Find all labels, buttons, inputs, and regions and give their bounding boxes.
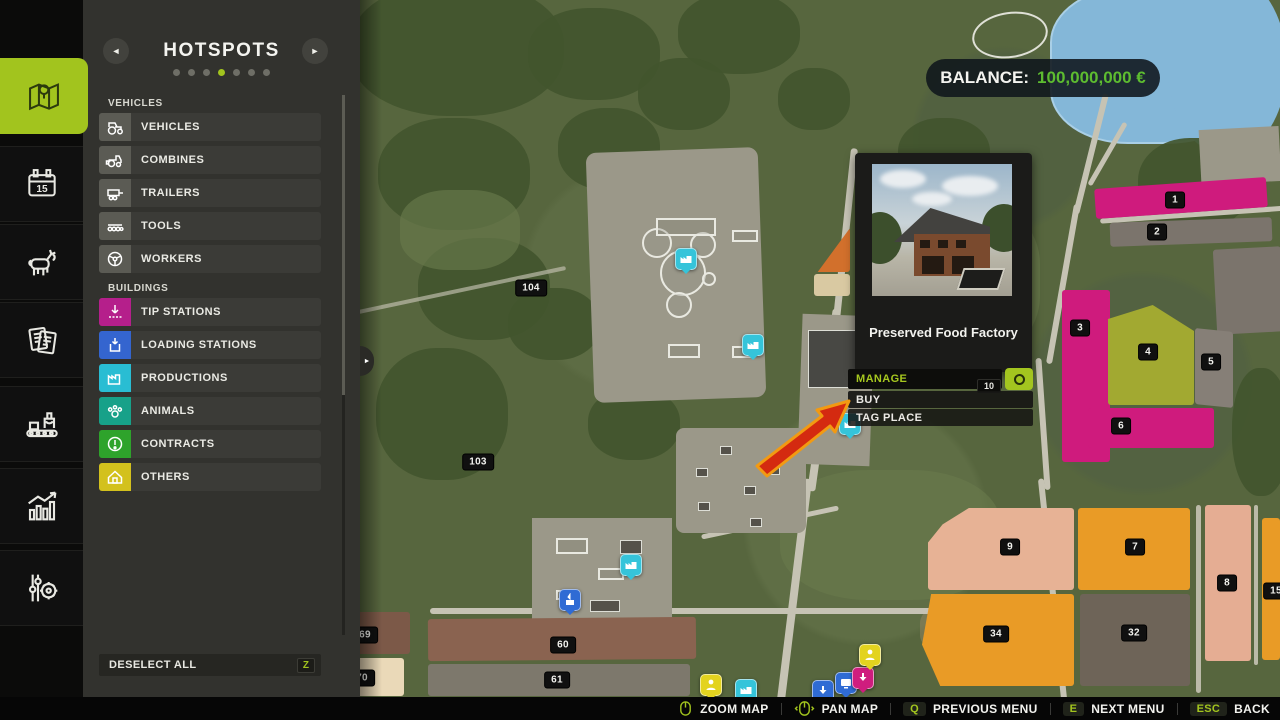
divider [781,703,782,715]
filter-label: TRAILERS [131,179,200,207]
field-number-61: 61 [544,672,570,689]
next-page-button[interactable]: ► [302,38,328,64]
hotspot-filter-workers[interactable]: WORKERS [99,245,321,273]
field-number-7: 7 [1125,539,1145,556]
page-dot [263,69,270,76]
keycap-q: Q [903,702,926,716]
tip-station-icon [99,298,131,326]
paw-icon [99,397,131,425]
field-number-3: 3 [1070,320,1090,337]
filter-label: VEHICLES [131,113,200,141]
field-number-4: 4 [1138,344,1158,361]
filter-label: WORKERS [131,245,202,273]
tab-production[interactable] [0,386,83,462]
page-dot [173,69,180,76]
menu-item-buy[interactable]: BUY [848,391,1033,408]
filter-label: LOADING STATIONS [131,331,257,359]
hint-zoom-map: ZOOM MAP [678,700,768,717]
field-number-69: 69 [360,627,378,644]
page-dot [188,69,195,76]
hotspot-filter-others[interactable]: OTHERS [99,463,321,491]
page-dot [218,69,225,76]
hint-next-menu: ENEXT MENU [1063,702,1165,716]
hint-label: PAN MAP [822,702,879,716]
field-number-60: 60 [550,637,576,654]
hotspot-filter-vehicles[interactable]: VEHICLES [99,113,321,141]
hotspot-filter-combines[interactable]: COMBINES [99,146,321,174]
field-number-9: 9 [1000,539,1020,556]
menu-item-tag-place[interactable]: TAG PLACE [848,409,1033,426]
field-number-1: 1 [1165,192,1185,209]
keycap-e: E [1063,702,1085,716]
tools-icon [99,212,131,240]
svg-text:15: 15 [36,184,48,195]
tab-statistics[interactable] [0,468,83,544]
mouse-icon [678,700,693,717]
hint-label: PREVIOUS MENU [933,702,1038,716]
person-marker[interactable] [700,674,722,696]
tab-calendar[interactable]: 15 [0,146,83,222]
trailer-icon [99,179,131,207]
hotspot-filter-lists: VEHICLESVEHICLESCOMBINESTRAILERSTOOLSWOR… [83,88,360,496]
field-number-15: 15 [1263,583,1280,600]
factory-icon [99,364,131,392]
divider [1177,703,1178,715]
hotspot-filter-trailers[interactable]: TRAILERS [99,179,321,207]
field-number-70: 70 [360,670,375,687]
hotspot-filter-loading-stations[interactable]: LOADING STATIONS [99,331,321,359]
down-arrow-marker[interactable] [852,667,874,689]
steering-wheel-icon [99,245,131,273]
popup-title: Preserved Food Factory [855,325,1032,340]
filter-label: PRODUCTIONS [131,364,228,392]
combine-icon [99,146,131,174]
game-screen: 10410312345697834326061697015 BALANCE: 1… [0,0,1280,720]
hint-label: ZOOM MAP [700,702,768,716]
field-number-32: 32 [1121,625,1147,642]
tractor-icon [99,113,131,141]
field-number-2: 2 [1147,224,1167,241]
filter-label: CONTRACTS [131,430,215,458]
balance-display: BALANCE: 100,000,000 € [926,59,1160,97]
calendar-icon: 15 [23,165,61,203]
field-gray-e [1213,246,1280,334]
contract-icon [99,430,131,458]
settings-icon [22,568,62,608]
map-icon [25,77,63,115]
page-dots [83,69,360,76]
page-dot [233,69,240,76]
hotspots-panel: ◄ HOTSPOTS ► VEHICLESVEHICLESCOMBINESTRA… [83,0,360,697]
cow-icon [22,242,62,282]
divider [890,703,891,715]
filter-label: OTHERS [131,463,190,491]
balance-label: BALANCE: [940,68,1029,88]
deselect-all-keycap: Z [297,658,315,673]
controls-hint-bar: ZOOM MAPPAN MAPQPREVIOUS MENUENEXT MENUE… [0,697,1280,720]
tab-animals[interactable] [0,224,83,300]
hint-previous-menu: QPREVIOUS MENU [903,702,1037,716]
hotspot-filter-tools[interactable]: TOOLS [99,212,321,240]
field-number-8: 8 [1217,575,1237,592]
filter-label: COMBINES [131,146,204,174]
person-marker[interactable] [859,644,881,666]
statistics-icon [22,486,62,526]
section-label: BUILDINGS [108,283,360,294]
filter-label: TIP STATIONS [131,298,221,326]
hint-back: ESCBACK [1190,702,1270,716]
pointer-arrow [745,393,865,483]
balance-value: 100,000,000 € [1037,68,1146,88]
hotspot-filter-animals[interactable]: ANIMALS [99,397,321,425]
hotspot-filter-productions[interactable]: PRODUCTIONS [99,364,321,392]
field-2 [1110,217,1273,247]
field-number-104: 104 [515,280,547,297]
hotspot-popup: Preserved Food Factory [855,153,1032,372]
hint-label: NEXT MENU [1091,702,1164,716]
production-marker[interactable] [735,679,757,697]
manage-icon [1014,374,1025,385]
page-dot [248,69,255,76]
loading-marker[interactable] [559,589,581,611]
page-dot [203,69,210,76]
divider [1050,703,1051,715]
hotspot-filter-tip-stations[interactable]: TIP STATIONS [99,298,321,326]
documents-icon [23,321,61,359]
deselect-all-button[interactable]: DESELECT ALL Z [99,654,321,676]
field-6 [1088,408,1214,448]
down-arrow-marker[interactable] [812,680,834,697]
building-photo [872,164,1012,296]
field-number-34: 34 [983,626,1009,643]
section-label: VEHICLES [108,98,360,109]
production-marker[interactable] [620,554,642,576]
field-tan-small [814,274,850,296]
keycap-esc: ESC [1190,702,1228,716]
field-number-6: 6 [1111,418,1131,435]
main-menu-sidebar: 15 [0,0,83,720]
manage-action-button[interactable] [1005,368,1033,390]
mouse-pan-icon [794,700,815,717]
hotspot-filter-contracts[interactable]: CONTRACTS [99,430,321,458]
house-icon [99,463,131,491]
map-viewport[interactable]: 10410312345697834326061697015 [360,0,1280,697]
filter-label: ANIMALS [131,397,195,425]
hint-pan-map: PAN MAP [794,700,879,717]
filter-label: TOOLS [131,212,181,240]
panel-scrollbar-thumb[interactable] [342,95,345,395]
tab-map[interactable] [0,58,88,134]
field-number-5: 5 [1201,354,1221,371]
production-marker[interactable] [675,248,697,270]
hint-label: BACK [1234,702,1270,716]
tab-settings[interactable] [0,550,83,626]
production-marker[interactable] [742,334,764,356]
deselect-all-label: DESELECT ALL [109,659,197,671]
field-number-103: 103 [462,454,494,471]
production-line-icon [22,404,62,444]
loading-station-icon [99,331,131,359]
tab-finances[interactable] [0,302,83,378]
pond-outline [969,7,1051,63]
